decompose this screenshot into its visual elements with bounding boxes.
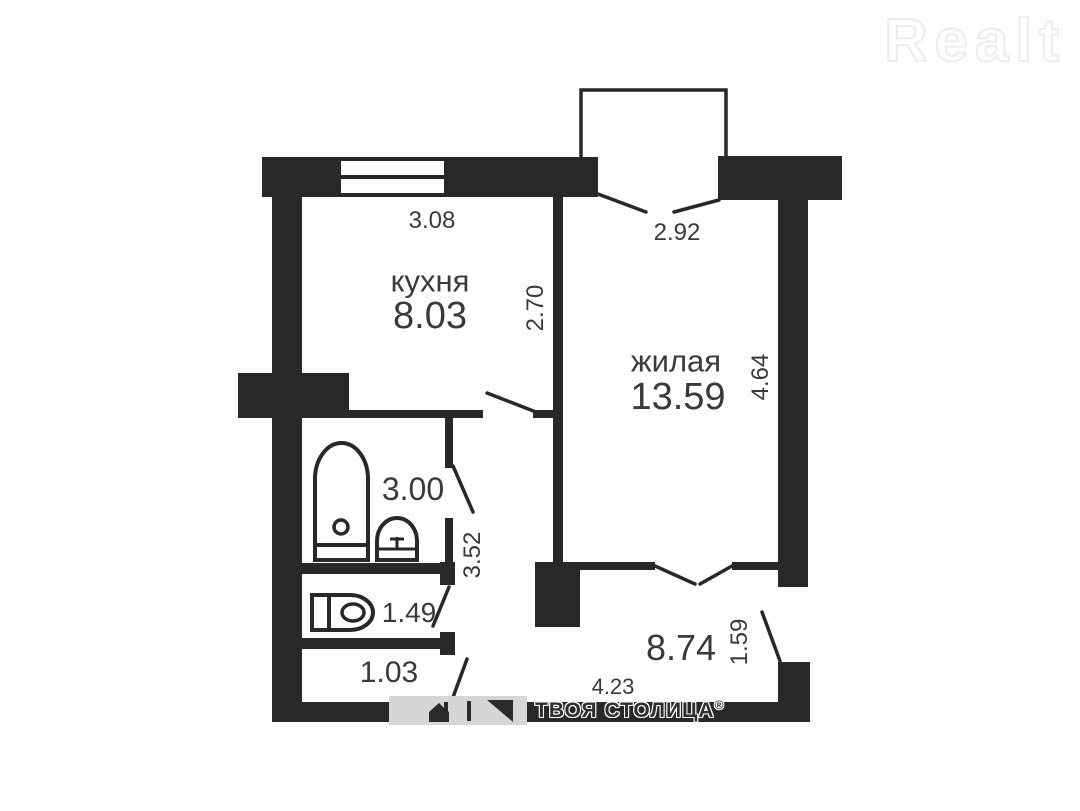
balcony-door-right-leaf [674, 200, 719, 212]
wall-bath-toilet-divider [302, 563, 440, 574]
wall-toilet-hall-stub [440, 632, 455, 655]
floorplan-drawing [0, 0, 1080, 811]
wall-bath-toilet-stub [440, 562, 455, 585]
dim-bathroom-side: 3.52 [461, 532, 485, 579]
entry-door-leaf [762, 612, 780, 661]
living-door-right-leaf [700, 566, 732, 584]
bathtub-icon [315, 443, 368, 560]
agency-logo-chip [389, 696, 527, 725]
house-icon [427, 700, 457, 722]
kitchen-window [339, 159, 446, 195]
living-door-left-leaf [655, 566, 695, 584]
hallway-door-leaf [452, 659, 467, 700]
dim-kitchen-side: 2.70 [524, 285, 548, 332]
corridor-area-label: 8.74 [646, 630, 716, 666]
wall-kitchen-bottom [349, 410, 483, 418]
wall-left [272, 197, 302, 720]
kitchen-area-label: 8.03 [393, 297, 467, 335]
toilet-width-label: 1.49 [382, 599, 437, 627]
dim-living-side: 4.64 [749, 354, 773, 401]
kitchen-name-label: кухня [391, 266, 470, 297]
balcony-door-left-leaf [598, 194, 646, 212]
bathroom-door-leaf [453, 466, 473, 512]
dim-corridor-bottom: 4.23 [592, 676, 635, 698]
dim-entry-door: 1.59 [728, 619, 752, 666]
hallway-width-label: 1.03 [360, 658, 418, 688]
logo-wedge [487, 700, 513, 722]
floorplan-page: Realt [0, 0, 1080, 811]
wall-left-block [238, 373, 349, 418]
sink-icon [377, 518, 417, 560]
wall-living-bottom-left [580, 562, 655, 570]
registered-mark: ® [715, 698, 725, 712]
wall-top-right [718, 156, 842, 200]
wall-right [778, 195, 808, 587]
dim-kitchen-top: 3.08 [409, 209, 456, 233]
wall-kitchen-living-divider [553, 197, 563, 563]
wall-toilet-hall-divider [302, 638, 440, 649]
logo-divider-bar [467, 701, 471, 721]
toilet-icon [312, 595, 373, 630]
balcony-outline [581, 90, 726, 157]
bathroom-area-label: 3.00 [382, 473, 444, 505]
agency-watermark: ТВОЯ СТОЛИЦА® [389, 696, 724, 725]
wall-bath-right-lower [445, 518, 453, 568]
wall-bath-right-upper [445, 418, 453, 468]
kitchen-door-leaf [487, 393, 536, 412]
agency-name-text: ТВОЯ СТОЛИЦА [535, 699, 715, 722]
wall-divider-block [535, 562, 580, 627]
wall-bottom-right-block [778, 662, 810, 722]
agency-name: ТВОЯ СТОЛИЦА® [535, 698, 724, 723]
living-area-label: 13.59 [630, 378, 725, 416]
wall-living-bottom-right [732, 562, 778, 570]
living-name-label: жилая [631, 346, 721, 377]
dim-balcony: 2.92 [654, 221, 701, 245]
